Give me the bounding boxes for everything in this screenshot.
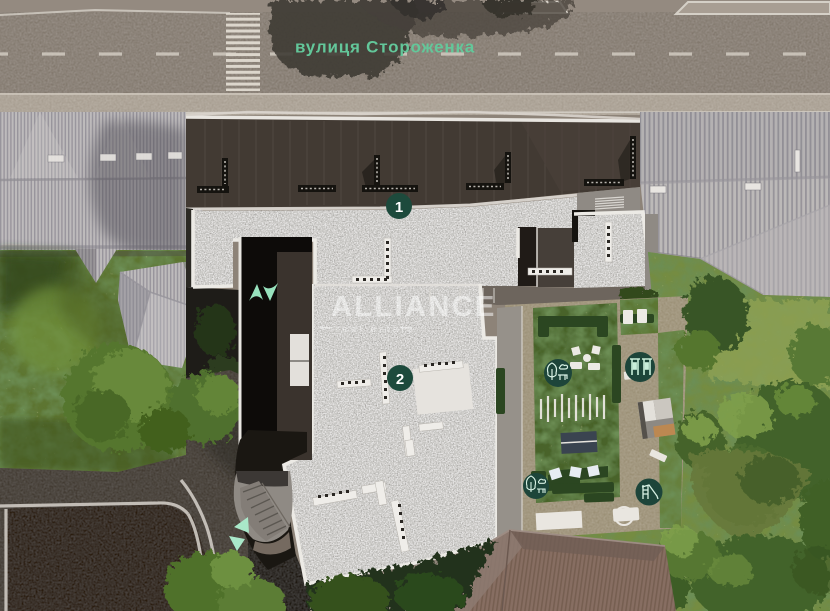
svg-text:1: 1 <box>395 199 403 216</box>
svg-text:вулиця Стороженка: вулиця Стороженка <box>295 38 475 57</box>
svg-text:ALLIANCE: ALLIANCE <box>331 291 497 323</box>
svg-text:2: 2 <box>396 371 404 388</box>
svg-text:real estate: real estate <box>336 324 416 335</box>
